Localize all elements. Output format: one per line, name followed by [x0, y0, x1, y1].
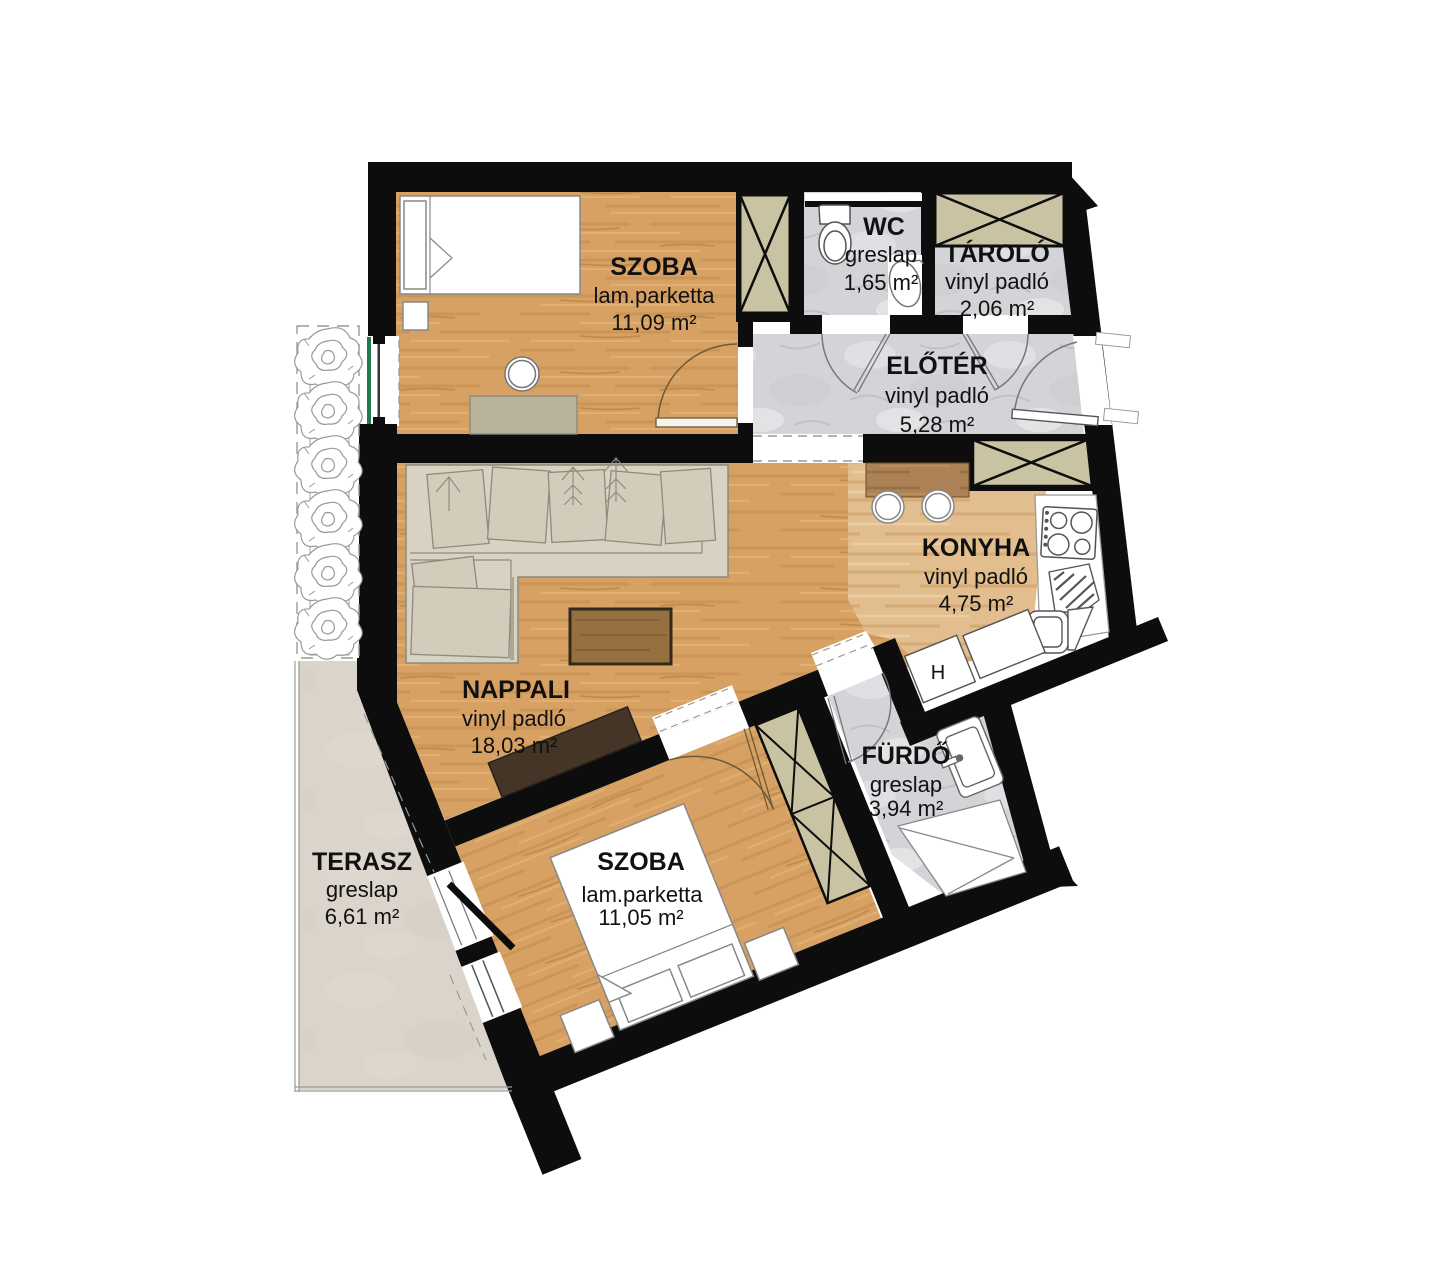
- svg-text:2,06 m²: 2,06 m²: [960, 296, 1035, 321]
- svg-text:TÁROLÓ: TÁROLÓ: [944, 238, 1050, 268]
- svg-text:6,61 m²: 6,61 m²: [325, 904, 400, 929]
- svg-text:TERASZ: TERASZ: [312, 848, 412, 876]
- svg-text:greslap: greslap: [326, 877, 398, 902]
- svg-text:5,28 m²: 5,28 m²: [900, 412, 975, 437]
- svg-text:3,94 m²: 3,94 m²: [869, 796, 944, 821]
- svg-text:NAPPALI: NAPPALI: [462, 676, 570, 704]
- svg-text:H: H: [931, 662, 945, 684]
- svg-text:lam.parketta: lam.parketta: [593, 283, 715, 308]
- svg-text:vinyl padló: vinyl padló: [924, 564, 1028, 589]
- svg-text:11,05 m²: 11,05 m²: [598, 905, 683, 930]
- svg-text:SZOBA: SZOBA: [597, 848, 685, 876]
- svg-text:4,75 m²: 4,75 m²: [939, 591, 1014, 616]
- svg-text:WC: WC: [863, 213, 905, 241]
- svg-text:lam.parketta: lam.parketta: [581, 882, 703, 907]
- svg-text:vinyl padló: vinyl padló: [885, 383, 989, 408]
- svg-text:vinyl padló: vinyl padló: [462, 706, 566, 731]
- svg-text:vinyl padló: vinyl padló: [945, 269, 1049, 294]
- svg-text:greslap: greslap: [845, 242, 917, 267]
- svg-text:greslap: greslap: [870, 772, 942, 797]
- svg-text:SZOBA: SZOBA: [610, 253, 698, 281]
- svg-text:18,03 m²: 18,03 m²: [471, 733, 558, 758]
- svg-text:FÜRDŐ: FÜRDŐ: [862, 741, 951, 770]
- svg-text:KONYHA: KONYHA: [922, 534, 1030, 562]
- svg-text:11,09 m²: 11,09 m²: [611, 310, 696, 335]
- svg-text:ELŐTÉR: ELŐTÉR: [886, 351, 987, 380]
- svg-text:1,65 m²: 1,65 m²: [844, 270, 919, 295]
